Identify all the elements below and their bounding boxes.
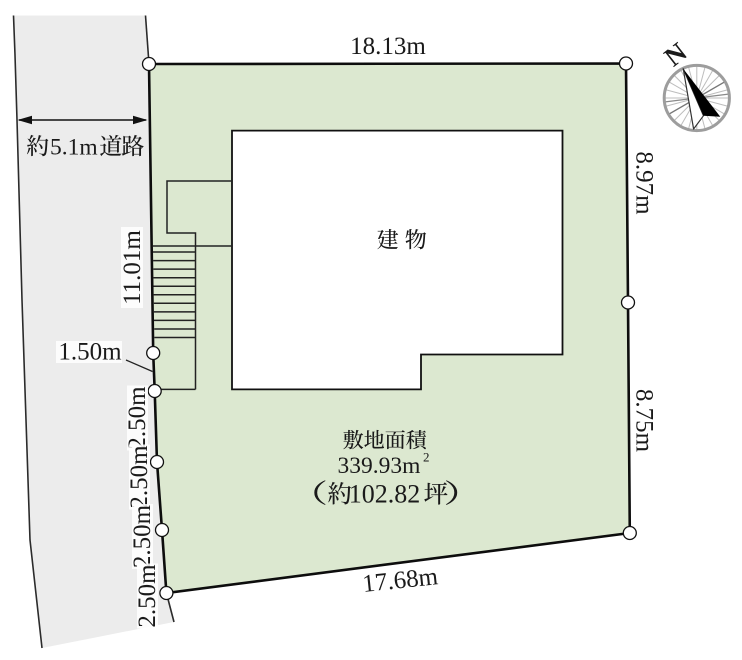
svg-text:8.75m: 8.75m: [631, 389, 658, 453]
svg-text:339.93m: 339.93m: [338, 453, 421, 479]
svg-text:2.50m: 2.50m: [134, 564, 161, 628]
svg-text:2.50m: 2.50m: [124, 386, 151, 450]
svg-text:2.50m: 2.50m: [129, 504, 156, 568]
svg-text:2: 2: [423, 450, 430, 465]
svg-text:2.50m: 2.50m: [126, 445, 153, 509]
svg-text:18.13m: 18.13m: [350, 33, 426, 60]
svg-text:5.1m: 5.1m: [50, 134, 98, 160]
svg-text:1.50m: 1.50m: [58, 339, 122, 366]
svg-text:102.82: 102.82: [349, 480, 421, 509]
svg-text:8.97m: 8.97m: [631, 151, 658, 215]
svg-text:11.01m: 11.01m: [119, 230, 146, 305]
